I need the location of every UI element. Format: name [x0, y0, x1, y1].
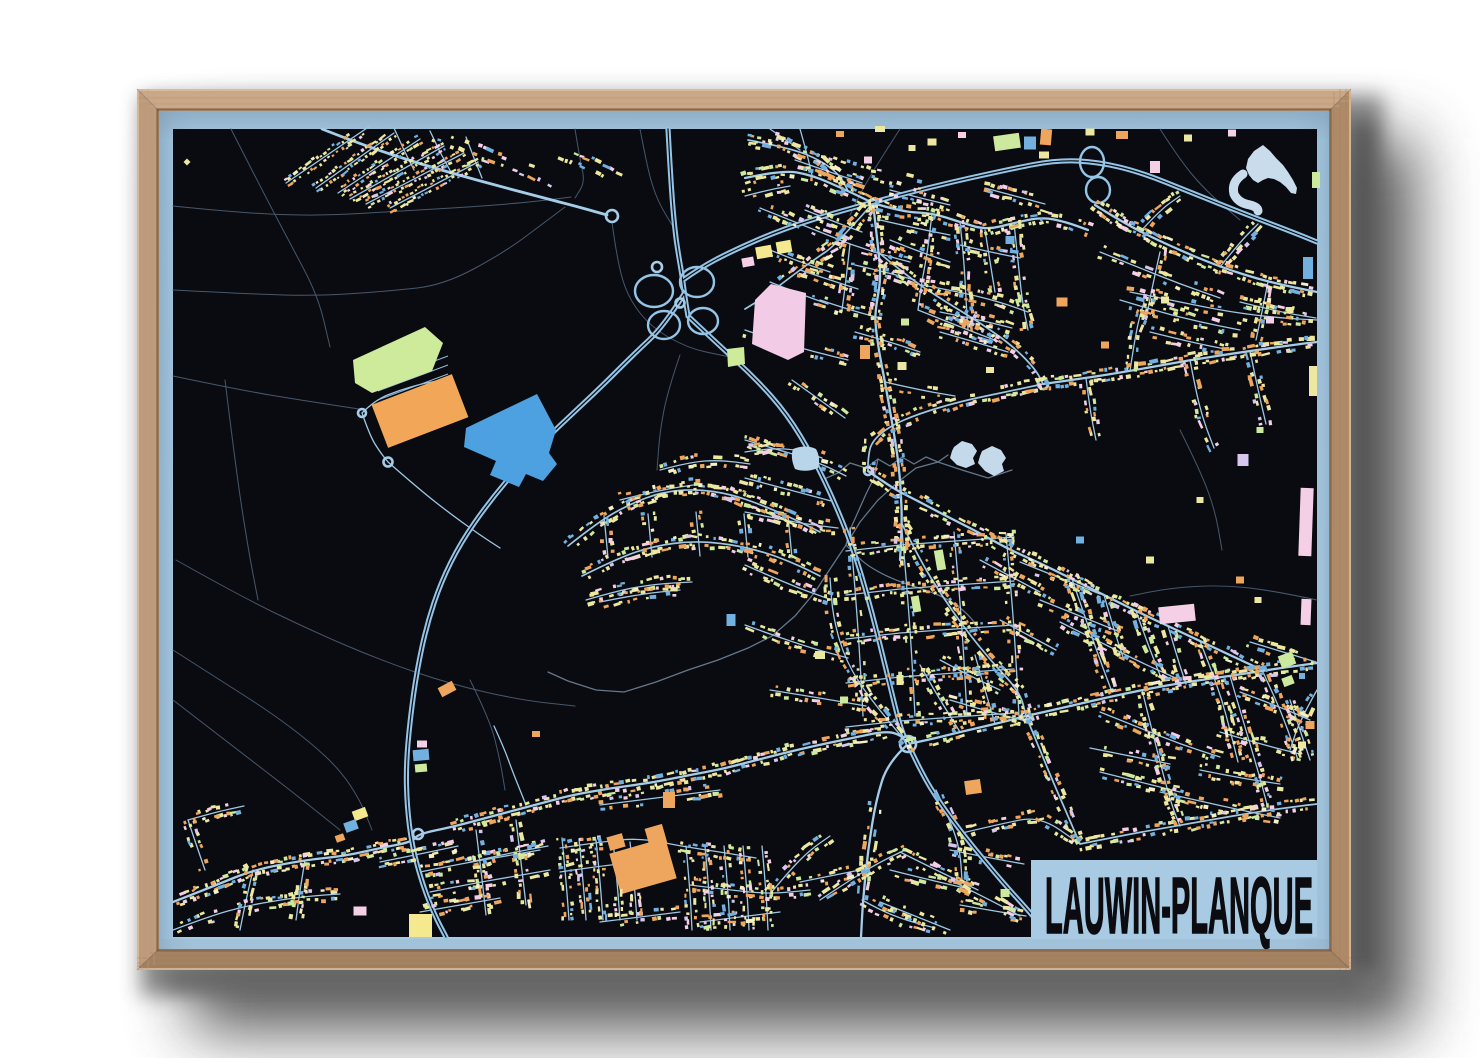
- svg-text:LAUWIN-PLANQUE: LAUWIN-PLANQUE: [1045, 861, 1313, 950]
